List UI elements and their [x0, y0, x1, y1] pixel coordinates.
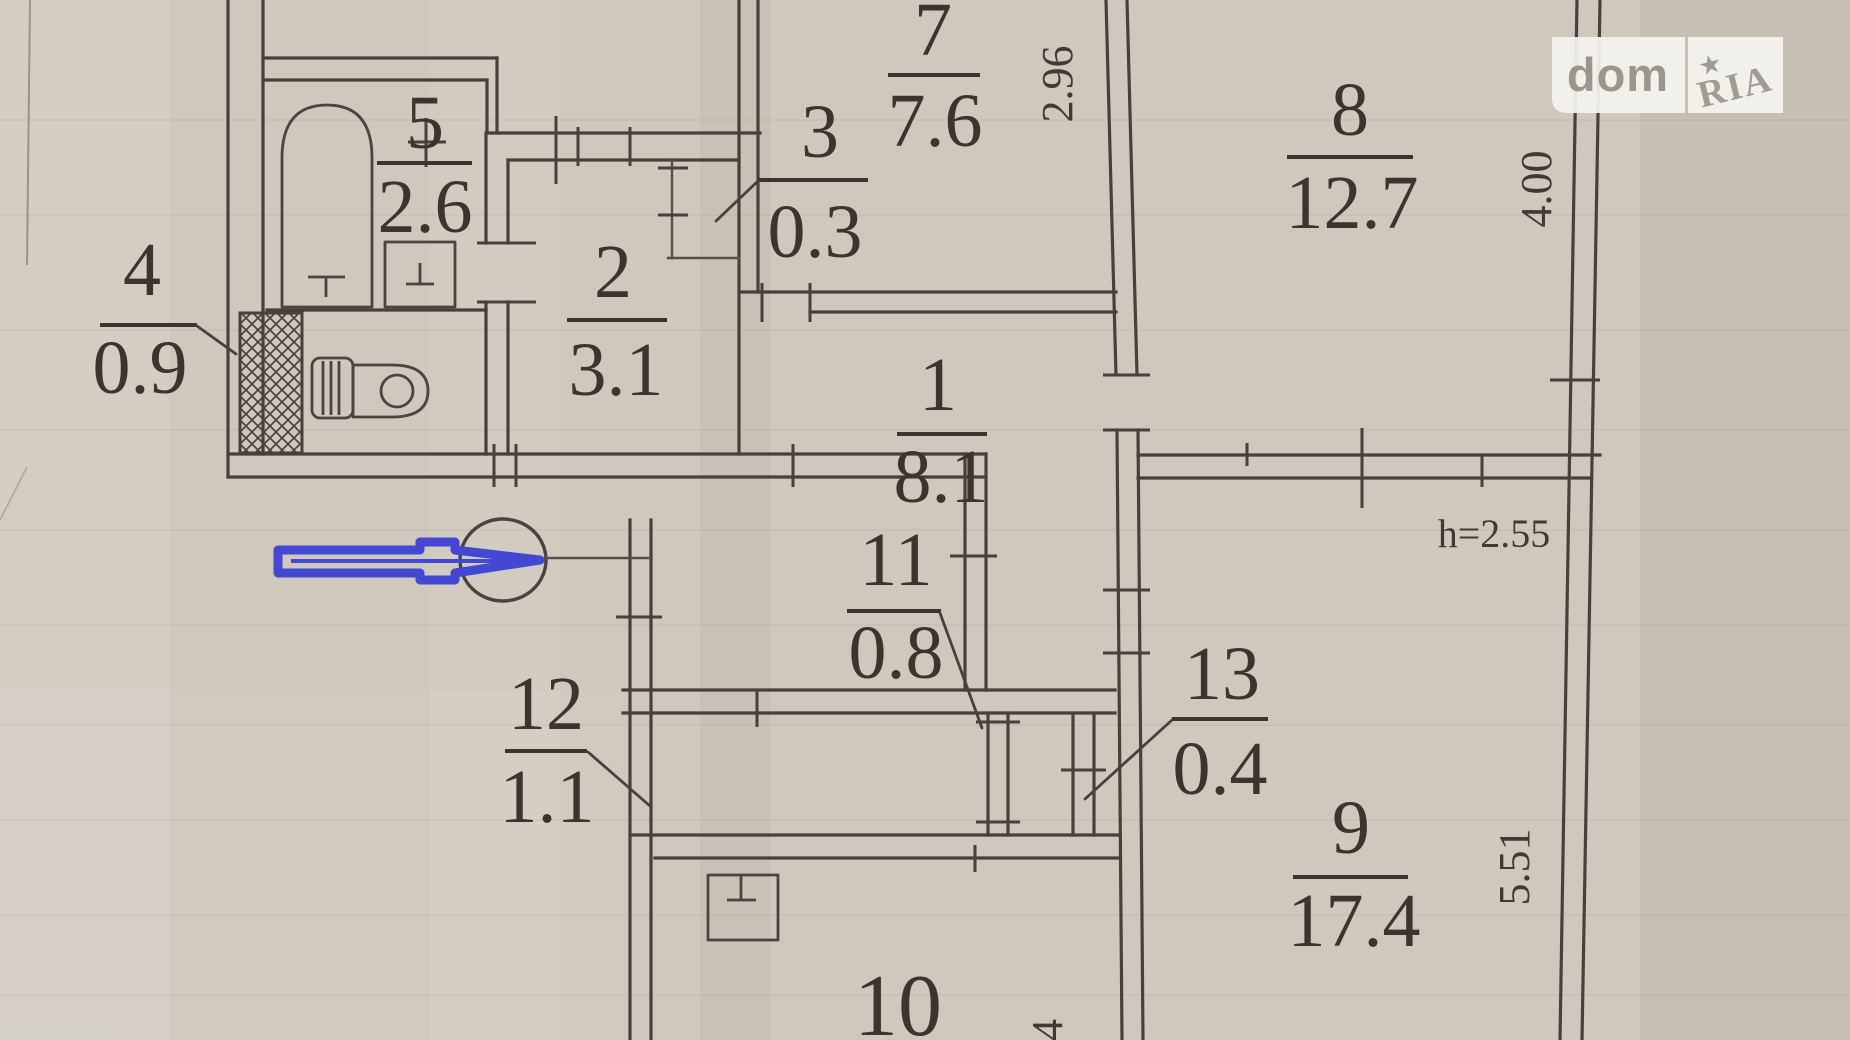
room-number: 5 — [406, 81, 444, 165]
floorplan-photo: 5 2.6 4 0.9 2 3.1 3 0.3 7 7.6 8 12.7 1 8… — [0, 0, 1850, 1040]
dimension-bottom-partial: 4 — [1023, 1019, 1072, 1040]
room-number: 1 — [919, 343, 957, 427]
room-area: 1.1 — [500, 755, 595, 839]
room-label-10: 10 — [854, 958, 942, 1040]
watermark: dom RIA ★ — [1552, 37, 1783, 117]
room-area: 7.6 — [888, 79, 983, 163]
dimension-ceiling-height: h=2.55 — [1438, 511, 1551, 556]
room-number: 3 — [801, 90, 839, 174]
room-number: 11 — [859, 518, 932, 602]
dimension-room7-width: 2.96 — [1033, 46, 1082, 123]
room-area: 0.4 — [1173, 727, 1268, 811]
ventilation-shaft-hatch — [240, 313, 302, 453]
room-number: 10 — [854, 958, 942, 1040]
room-area: 12.7 — [1286, 161, 1419, 245]
room-area: 17.4 — [1288, 879, 1421, 963]
watermark-dom-logo: dom — [1567, 48, 1669, 101]
dimension-room9-height: 5.51 — [1490, 829, 1539, 906]
dimension-room8-width: 4.00 — [1512, 151, 1561, 228]
room-number: 9 — [1332, 786, 1370, 870]
room-area: 3.1 — [569, 328, 664, 412]
room-number: 7 — [914, 0, 952, 72]
room-number: 12 — [508, 662, 584, 746]
room-number: 8 — [1331, 68, 1369, 152]
room-area: 2.6 — [378, 165, 473, 249]
room-area: 0.3 — [768, 190, 863, 274]
room-area: 8.1 — [894, 435, 989, 519]
room-number: 4 — [123, 228, 161, 312]
room-number: 13 — [1184, 632, 1260, 716]
floorplan-drawing: 5 2.6 4 0.9 2 3.1 3 0.3 7 7.6 8 12.7 1 8… — [0, 0, 1850, 1040]
room-area: 0.8 — [849, 611, 944, 695]
room-number: 2 — [594, 230, 632, 314]
room-area: 0.9 — [93, 326, 188, 410]
